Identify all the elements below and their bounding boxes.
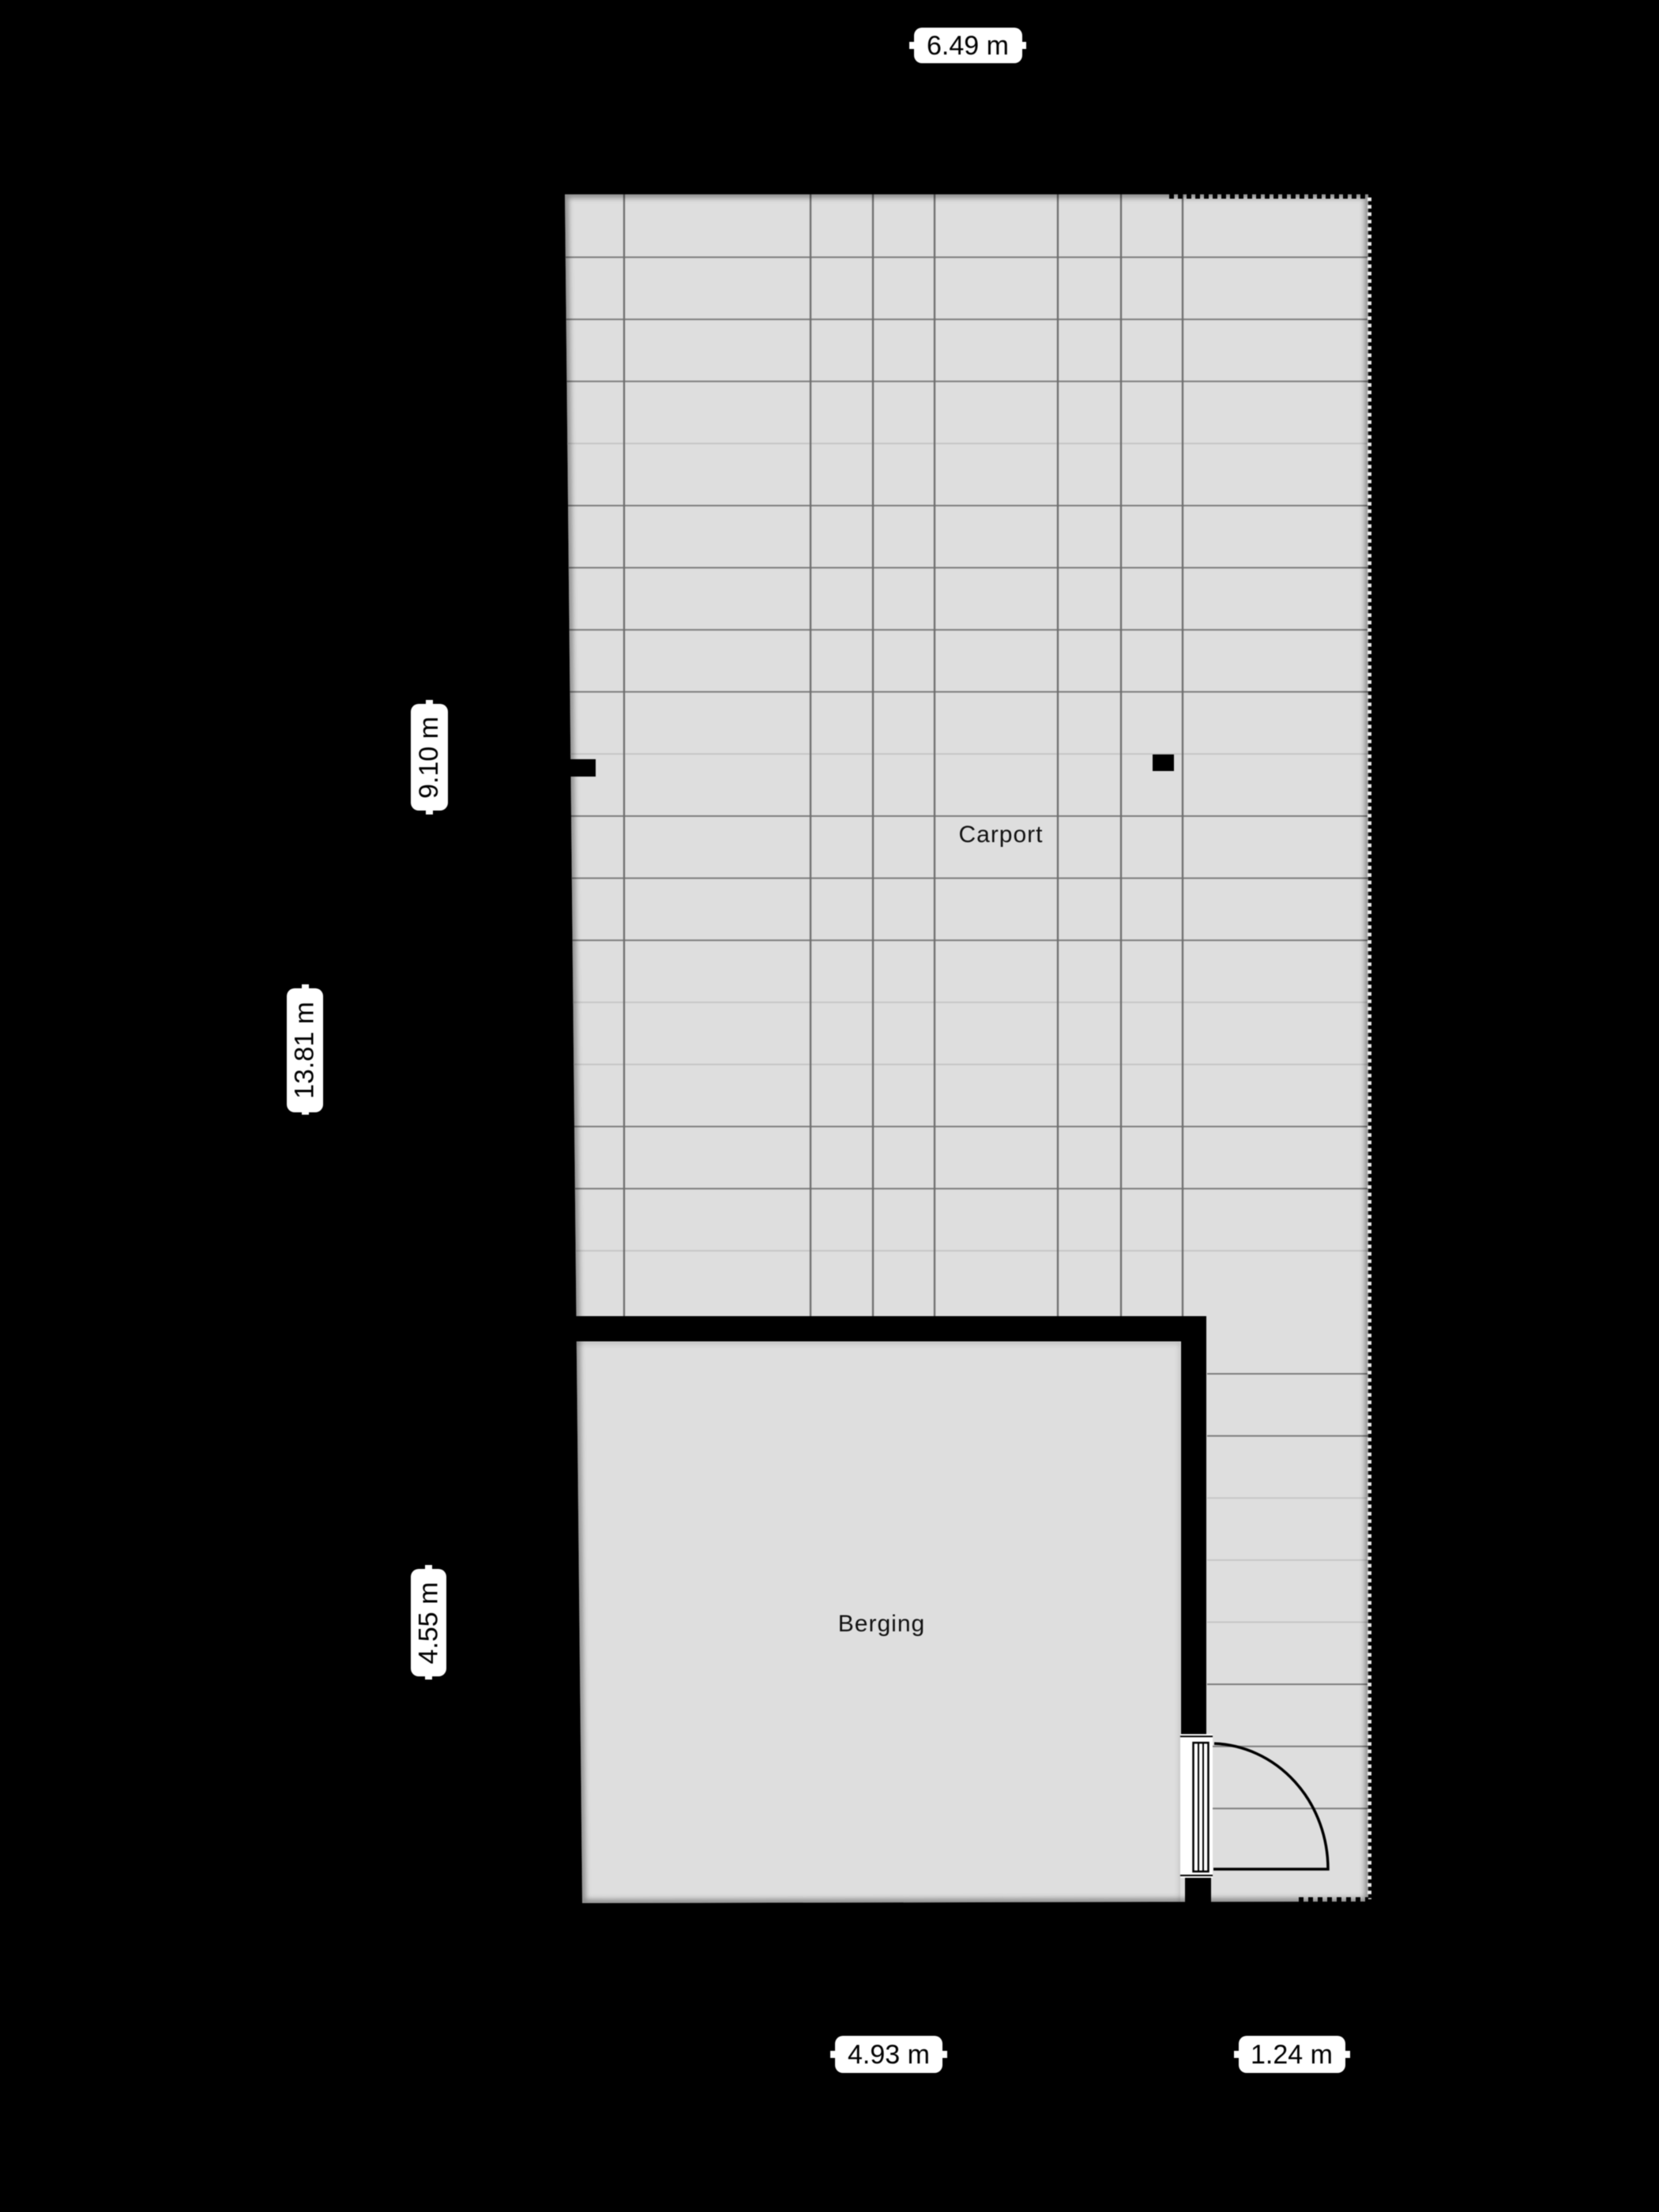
svg-text:4.55 m: 4.55 m xyxy=(414,1582,444,1665)
svg-text:9.10 m: 9.10 m xyxy=(414,717,444,799)
svg-text:Berging: Berging xyxy=(838,1611,925,1637)
svg-text:13.81 m: 13.81 m xyxy=(290,1002,320,1099)
svg-text:6.49 m: 6.49 m xyxy=(927,31,1009,61)
svg-text:1.24 m: 1.24 m xyxy=(1251,2040,1333,2070)
svg-text:Carport: Carport xyxy=(958,822,1043,848)
svg-text:4.93 m: 4.93 m xyxy=(848,2040,930,2070)
